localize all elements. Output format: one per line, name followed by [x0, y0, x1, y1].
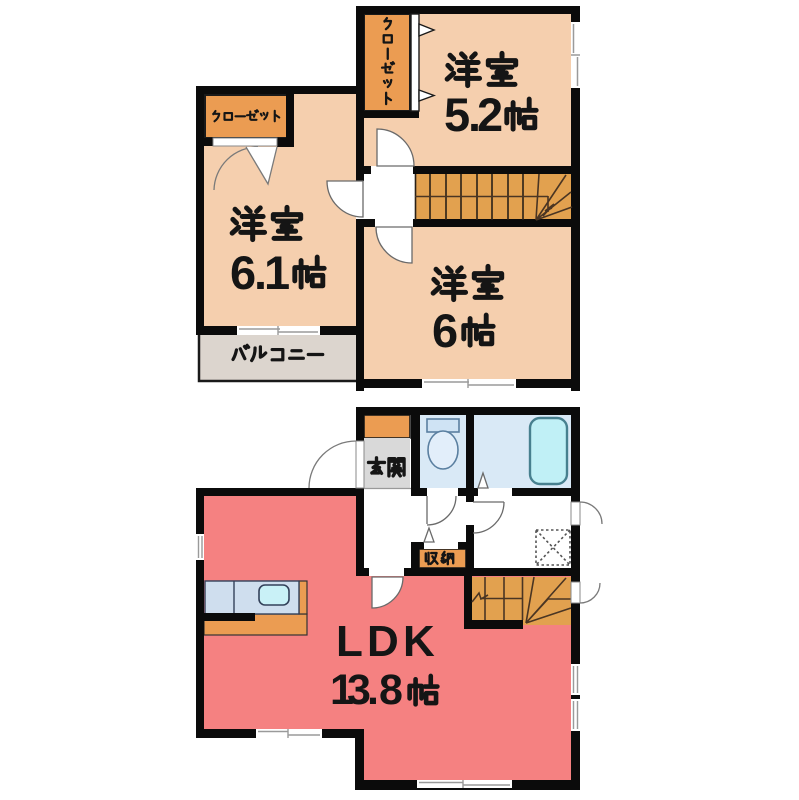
svg-text:2: 2: [477, 88, 503, 141]
svg-text:L: L: [336, 617, 363, 666]
svg-text:K: K: [403, 617, 435, 666]
svg-text:8: 8: [379, 666, 403, 714]
svg-text:1: 1: [264, 246, 290, 299]
svg-text:D: D: [367, 617, 399, 666]
svg-text:6: 6: [432, 304, 458, 357]
svg-text:6: 6: [230, 246, 256, 299]
svg-text:5: 5: [444, 88, 470, 141]
svg-text:.: .: [367, 666, 379, 714]
